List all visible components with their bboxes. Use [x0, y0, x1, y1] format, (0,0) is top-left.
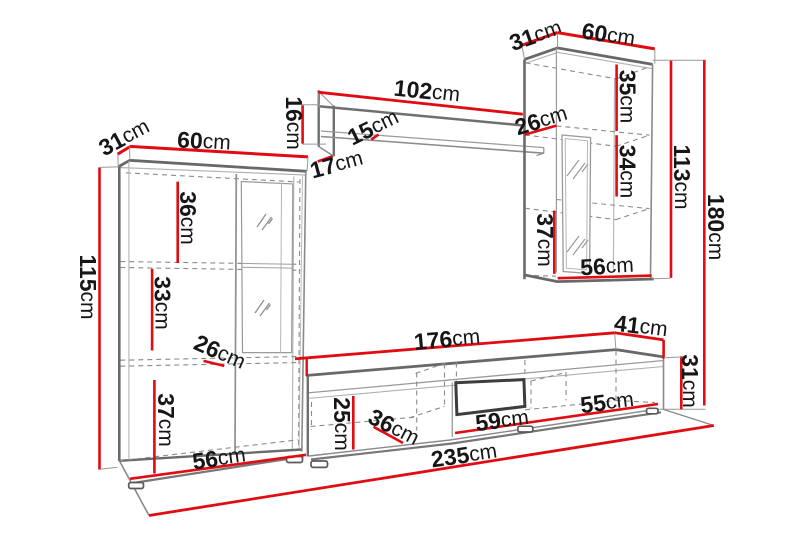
svg-text:31cm: 31cm — [677, 354, 703, 408]
svg-text:113cm: 113cm — [669, 144, 695, 209]
svg-text:37cm: 37cm — [532, 213, 558, 267]
svg-text:35cm: 35cm — [615, 70, 641, 124]
svg-text:34cm: 34cm — [615, 145, 641, 199]
svg-text:25cm: 25cm — [329, 397, 355, 451]
svg-text:37cm: 37cm — [153, 393, 179, 447]
svg-text:56cm: 56cm — [580, 252, 635, 281]
svg-text:36cm: 36cm — [175, 191, 201, 245]
svg-text:33cm: 33cm — [150, 276, 176, 330]
svg-text:60cm: 60cm — [176, 126, 231, 155]
svg-text:180cm: 180cm — [703, 194, 729, 260]
svg-text:115cm: 115cm — [75, 254, 101, 319]
svg-text:16cm: 16cm — [281, 96, 307, 150]
